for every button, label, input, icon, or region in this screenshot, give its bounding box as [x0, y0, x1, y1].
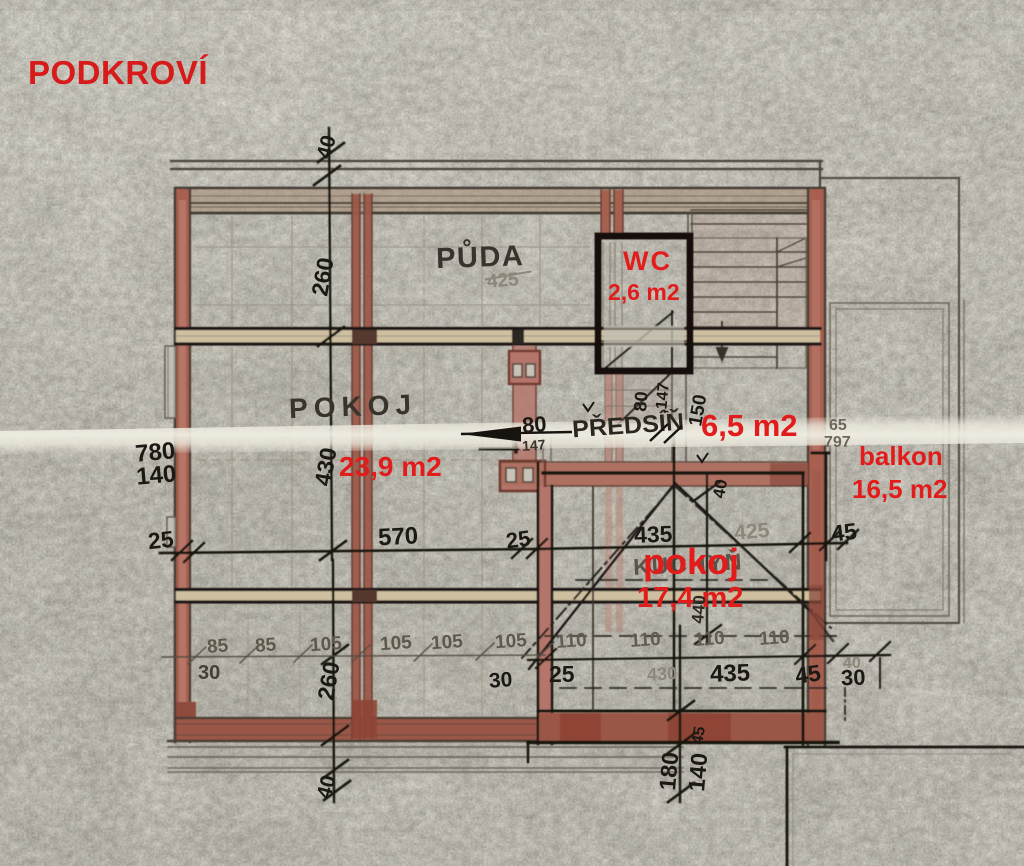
svg-text:2,6 m2: 2,6 m2 — [608, 279, 680, 305]
svg-text:110: 110 — [758, 627, 790, 650]
svg-text:6,5 m2: 6,5 m2 — [701, 408, 798, 443]
svg-text:180: 180 — [654, 751, 683, 791]
svg-text:435: 435 — [634, 521, 673, 548]
svg-text:65: 65 — [829, 417, 847, 434]
svg-text:25: 25 — [147, 526, 175, 555]
svg-text:105: 105 — [494, 630, 528, 653]
svg-text:WC: WC — [623, 246, 672, 276]
svg-text:balkon: balkon — [859, 441, 943, 471]
svg-text:45: 45 — [793, 659, 822, 688]
svg-text:140: 140 — [135, 460, 177, 490]
svg-text:45: 45 — [830, 518, 859, 547]
svg-text:105: 105 — [309, 633, 343, 656]
svg-text:105: 105 — [430, 631, 464, 654]
svg-text:430: 430 — [647, 663, 678, 685]
svg-text:85: 85 — [206, 635, 229, 657]
svg-text:80: 80 — [630, 391, 652, 413]
svg-text:80: 80 — [521, 411, 547, 438]
svg-text:110: 110 — [693, 628, 725, 651]
svg-text:30: 30 — [198, 662, 220, 684]
svg-text:PODKROVÍ: PODKROVÍ — [28, 54, 208, 91]
svg-text:25: 25 — [504, 525, 532, 553]
svg-text:435: 435 — [710, 659, 751, 687]
svg-text:45: 45 — [689, 725, 709, 746]
svg-text:30: 30 — [488, 668, 513, 693]
svg-text:25: 25 — [549, 661, 575, 687]
svg-text:pokoj: pokoj — [643, 541, 739, 582]
svg-text:85: 85 — [254, 634, 277, 656]
svg-text:POKOJ: POKOJ — [289, 389, 418, 424]
svg-text:440: 440 — [688, 594, 709, 624]
svg-text:40: 40 — [709, 478, 731, 500]
svg-text:570: 570 — [377, 522, 418, 551]
svg-text:147: 147 — [522, 436, 547, 454]
svg-text:425: 425 — [486, 269, 520, 292]
svg-text:,147: ,147 — [653, 382, 673, 415]
svg-text:23,9 m2: 23,9 m2 — [339, 451, 442, 482]
svg-text:110: 110 — [555, 630, 587, 653]
svg-text:140: 140 — [683, 752, 712, 792]
svg-text:797: 797 — [824, 434, 851, 451]
svg-text:105: 105 — [379, 632, 413, 655]
svg-text:16,5 m2: 16,5 m2 — [852, 474, 947, 504]
svg-text:110: 110 — [629, 629, 661, 652]
svg-text:40: 40 — [843, 655, 861, 672]
svg-text:425: 425 — [733, 519, 770, 545]
